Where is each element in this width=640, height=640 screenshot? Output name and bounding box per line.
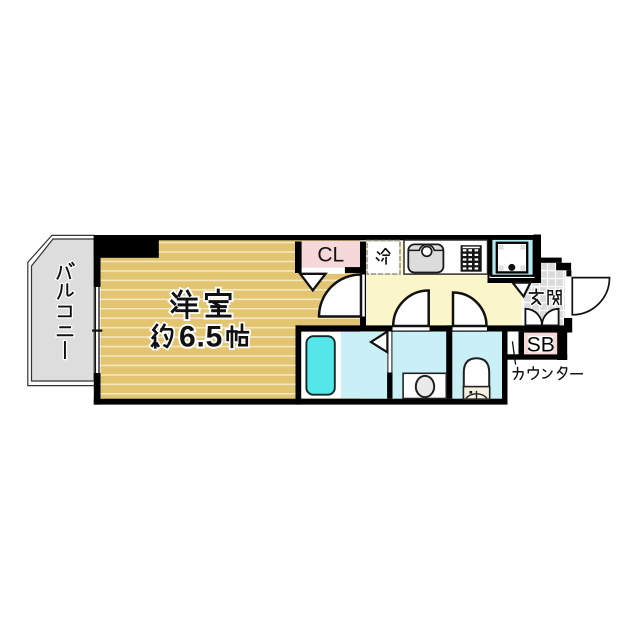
svg-text:SB: SB bbox=[527, 333, 555, 356]
svg-text:CL: CL bbox=[317, 244, 344, 267]
svg-text:6.5: 6.5 bbox=[179, 321, 223, 354]
